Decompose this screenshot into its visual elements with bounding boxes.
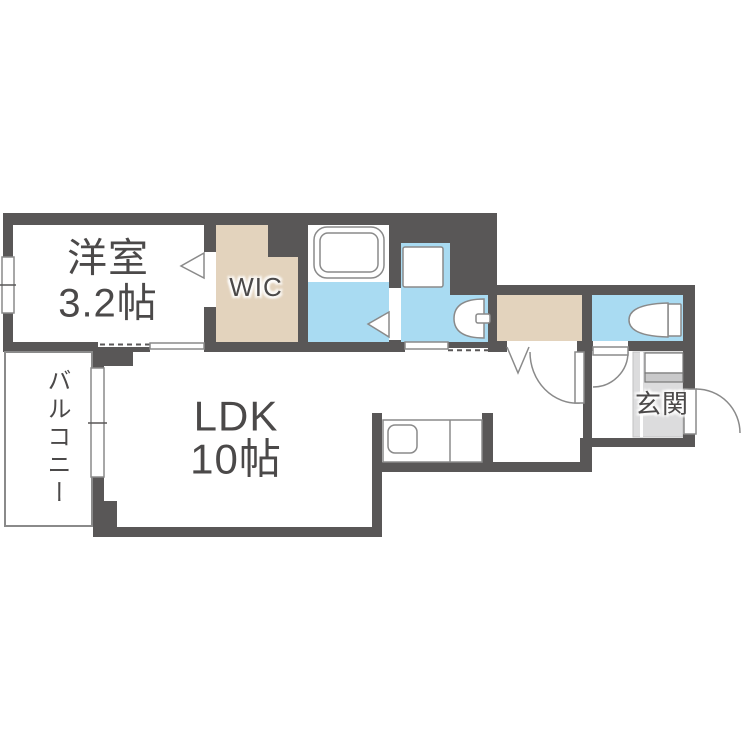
wall-segment: [372, 413, 382, 537]
toilet-door-swing-arc: [593, 352, 628, 387]
wall-segment: [3, 225, 13, 257]
label-balcony: バルコニー: [43, 368, 69, 508]
floor-plan: 洋室 3.2帖 WIC LDK 10帖 玄関 バルコニー: [0, 0, 750, 750]
wall-segment: [401, 213, 450, 243]
toilet-tank: [668, 304, 681, 336]
wall-segment: [488, 341, 507, 352]
wall-segment: [372, 462, 580, 472]
wall-segment: [592, 438, 695, 447]
hall-door-leaf: [575, 352, 584, 403]
shoe-cabinet-icon: [645, 353, 683, 382]
label-ldk-size: 10帖: [190, 436, 282, 481]
wall-segment: [683, 295, 695, 389]
washbasin-icon: [454, 299, 490, 338]
label-western-room-name: 洋室: [67, 237, 149, 280]
bathtub-icon: [314, 227, 384, 278]
wic-door-icon: [181, 253, 204, 278]
shoe-cabinet-top: [645, 353, 683, 373]
wall-segment: [482, 413, 493, 462]
label-western-room-size: 3.2帖: [58, 282, 158, 325]
sliding-door-panel: [150, 343, 204, 349]
entrance-door-swing-arc: [696, 389, 740, 433]
wall-segment: [204, 213, 216, 252]
wall-segment: [268, 225, 298, 257]
label-wic: WIC: [229, 273, 283, 301]
wall-segment: [98, 347, 150, 352]
wall-segment: [298, 213, 308, 352]
wall-segment: [3, 342, 98, 352]
wall-segment: [91, 352, 133, 366]
sliding-door-panel: [405, 342, 448, 349]
washbasin-faucet: [476, 314, 490, 323]
wall-segment: [450, 213, 497, 295]
wall-segment: [93, 527, 382, 537]
bathroom-door-opening: [389, 288, 401, 340]
closet-door-opening: [507, 341, 577, 352]
hall-closet-floor: [497, 295, 582, 341]
kitchen-counter: [383, 420, 482, 462]
bathtub-outer: [314, 227, 384, 278]
bathroom-floor: [308, 282, 389, 342]
wall-segment: [389, 340, 401, 352]
wall-segment: [582, 295, 592, 341]
sliding-door-opening: [98, 342, 150, 347]
toilet-icon: [629, 303, 681, 337]
floor-plan-canvas: [0, 0, 750, 750]
wic-door-opening: [204, 252, 216, 307]
label-ldk-name: LDK: [194, 393, 279, 438]
wall-segment: [389, 225, 401, 288]
shoe-cabinet-base: [645, 373, 683, 382]
kitchen-counter-top: [383, 420, 482, 462]
wall-segment: [91, 501, 117, 527]
toilet-door-leaf: [593, 347, 628, 355]
wall-segment: [497, 285, 695, 295]
wall-segment: [628, 341, 683, 351]
washing-machine-pan-icon: [403, 247, 443, 287]
wall-segment: [582, 341, 593, 351]
wall-segment: [448, 342, 488, 348]
hall-door-swing-arc: [530, 352, 580, 403]
wall-segment: [580, 438, 592, 472]
label-entrance: 玄関: [635, 390, 689, 418]
